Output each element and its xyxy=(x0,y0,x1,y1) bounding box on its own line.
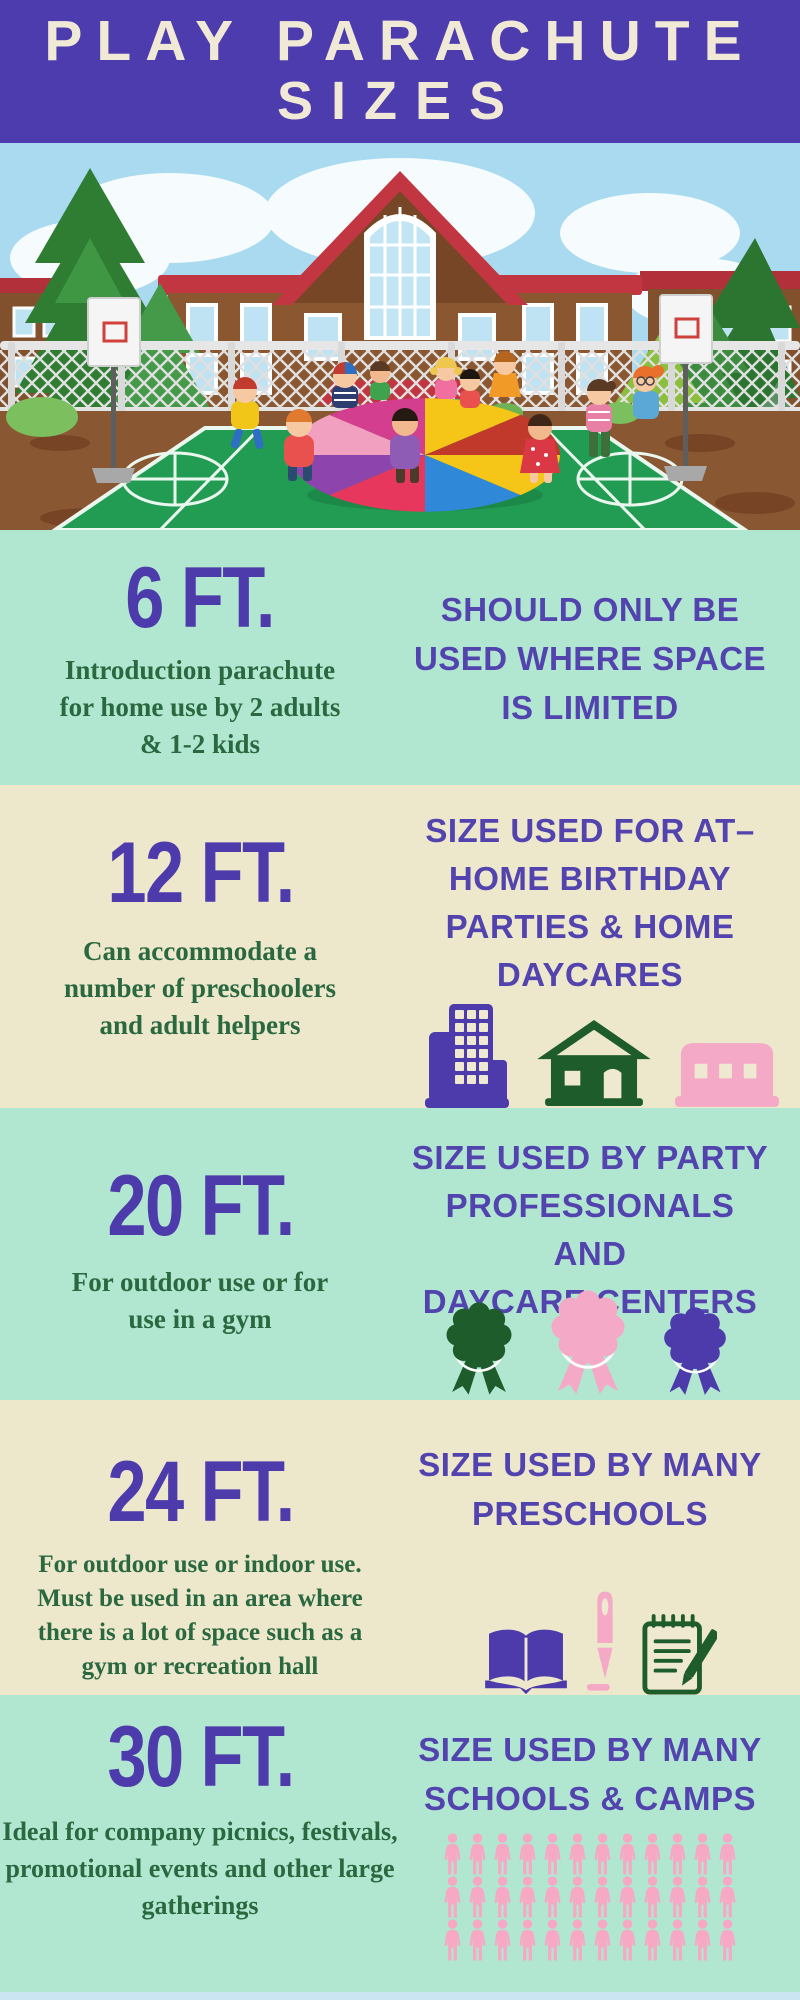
person-icon xyxy=(440,1876,465,1919)
person-icon xyxy=(565,1919,590,1962)
apartment-building-icon xyxy=(421,1002,513,1108)
page-title-line1: PLAY PARACHUTE xyxy=(0,0,800,72)
size-30ft-heading: SIZE USED BY MANYSCHOOLS & CAMPS xyxy=(418,1725,761,1823)
open-book-icon xyxy=(483,1626,569,1698)
notepad-icon xyxy=(641,1612,717,1698)
person-icon xyxy=(690,1919,715,1962)
header-banner: PLAY PARACHUTE SIZES xyxy=(0,0,800,143)
person-icon xyxy=(665,1876,690,1919)
person-icon xyxy=(515,1876,540,1919)
person-icon xyxy=(565,1876,590,1919)
house-icon xyxy=(535,1018,653,1108)
size-6ft-description: Introduction parachutefor home use by 2 … xyxy=(60,652,341,763)
rosette-purple-icon xyxy=(658,1305,732,1400)
person-icon xyxy=(690,1833,715,1876)
person-icon xyxy=(715,1919,740,1962)
pen-icon xyxy=(585,1588,625,1698)
person-icon xyxy=(515,1919,540,1962)
person-icon xyxy=(490,1833,515,1876)
person-icon xyxy=(640,1919,665,1962)
rosette-green-icon xyxy=(440,1300,518,1400)
person-icon xyxy=(665,1833,690,1876)
size-12ft-heading: SIZE USED FOR AT–HOME BIRTHDAYPARTIES & … xyxy=(425,807,754,999)
person-icon xyxy=(715,1833,740,1876)
person-icon xyxy=(440,1833,465,1876)
rosette-pink-icon xyxy=(544,1288,632,1400)
person-icon xyxy=(490,1919,515,1962)
size-20ft-label: 20 FT. xyxy=(107,1164,293,1248)
infographic-page: PLAY PARACHUTE SIZES xyxy=(0,0,800,2000)
person-icon xyxy=(665,1919,690,1962)
section-24ft: 24 FT. For outdoor use or indoor use.Mus… xyxy=(0,1400,800,1695)
size-6ft-label: 6 FT. xyxy=(126,556,275,640)
size-24ft-heading: SIZE USED BY MANYPRESCHOOLS xyxy=(418,1440,761,1538)
person-icon xyxy=(465,1833,490,1876)
person-icon xyxy=(465,1919,490,1962)
person-icon xyxy=(640,1876,665,1919)
school-playground-illustration xyxy=(0,143,800,530)
person-icon xyxy=(490,1876,515,1919)
person-icon xyxy=(590,1876,615,1919)
size-30ft-label: 30 FT. xyxy=(107,1715,293,1799)
person-icon xyxy=(515,1833,540,1876)
page-title-line2: SIZES xyxy=(0,72,800,130)
size-24ft-label: 24 FT. xyxy=(107,1450,293,1534)
size-6ft-heading: SHOULD ONLY BEUSED WHERE SPACEIS LIMITED xyxy=(414,585,766,732)
person-icon xyxy=(540,1919,565,1962)
person-icon xyxy=(565,1833,590,1876)
person-icon xyxy=(540,1833,565,1876)
person-icon xyxy=(590,1833,615,1876)
person-icon xyxy=(615,1919,640,1962)
person-icon xyxy=(640,1833,665,1876)
size-12ft-label: 12 FT. xyxy=(107,831,293,915)
person-icon xyxy=(715,1876,740,1919)
size-30ft-description: Ideal for company picnics, festivals,pro… xyxy=(2,1813,397,1924)
person-icon xyxy=(615,1876,640,1919)
section-6ft: 6 FT. Introduction parachutefor home use… xyxy=(0,530,800,785)
size-20ft-description: For outdoor use or foruse in a gym xyxy=(72,1264,329,1338)
size-12ft-description: Can accommodate anumber of preschoolersa… xyxy=(64,933,336,1044)
daycare-garage-icon xyxy=(675,1041,779,1108)
person-icon xyxy=(540,1876,565,1919)
size-24ft-description: For outdoor use or indoor use.Must be us… xyxy=(37,1548,362,1684)
person-icon xyxy=(590,1919,615,1962)
person-icon xyxy=(615,1833,640,1876)
person-icon xyxy=(465,1876,490,1919)
person-icon xyxy=(690,1876,715,1919)
person-icon xyxy=(440,1919,465,1962)
crowd-pictogram xyxy=(440,1833,740,1962)
footer-strip xyxy=(0,1992,800,2000)
section-20ft: 20 FT. For outdoor use or foruse in a gy… xyxy=(0,1108,800,1400)
section-30ft: 30 FT. Ideal for company picnics, festiv… xyxy=(0,1695,800,1992)
section-12ft: 12 FT. Can accommodate anumber of presch… xyxy=(0,785,800,1108)
